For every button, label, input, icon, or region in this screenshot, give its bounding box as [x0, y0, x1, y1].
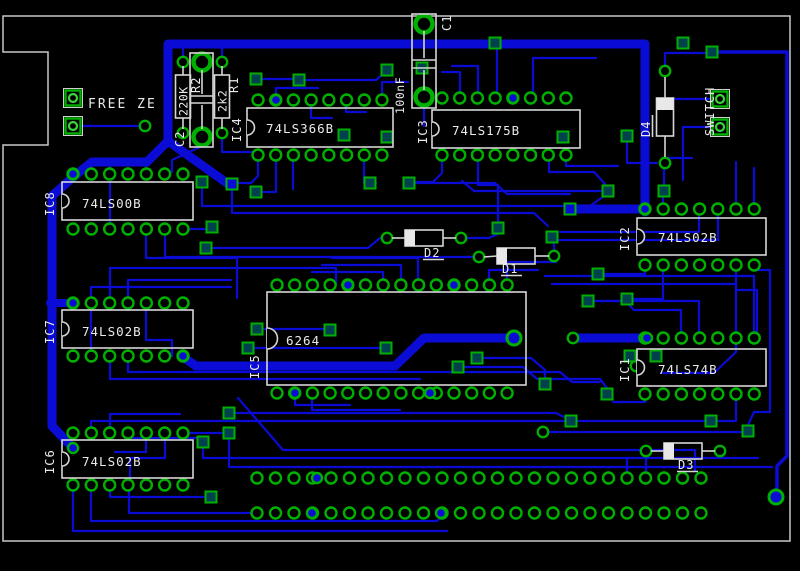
- through-hole-pad: [378, 280, 389, 291]
- through-hole-pad: [141, 169, 152, 180]
- through-hole-pad: [640, 389, 651, 400]
- via-square: [252, 324, 263, 335]
- via-square: [603, 186, 614, 197]
- through-hole-pad: [640, 204, 650, 214]
- through-hole-pad: [712, 204, 723, 215]
- through-hole-pad: [359, 95, 370, 106]
- through-hole-pad: [252, 473, 263, 484]
- through-hole-pad: [194, 129, 211, 146]
- via-square: [224, 428, 235, 439]
- through-hole-pad: [343, 280, 353, 290]
- through-hole-pad: [68, 224, 79, 235]
- through-hole-pad: [376, 95, 387, 106]
- through-hole-pad: [344, 473, 355, 484]
- through-hole-pad: [676, 204, 687, 215]
- d1-ref-label: D1: [502, 262, 518, 276]
- via-square: [339, 130, 350, 141]
- via-square: [251, 74, 262, 85]
- via-square: [678, 38, 689, 49]
- through-hole-pad: [437, 93, 448, 104]
- through-hole-pad: [177, 480, 188, 491]
- through-hole-pad: [360, 388, 371, 399]
- through-hole-pad: [507, 331, 521, 345]
- through-hole-pad: [104, 480, 115, 491]
- through-hole-pad: [437, 150, 448, 161]
- d3-ref-label: D3: [678, 458, 694, 472]
- through-hole-pad: [217, 57, 227, 67]
- d2-ref-label: D2: [424, 246, 440, 260]
- switch-label: SWITCH: [703, 87, 717, 136]
- via-square: [707, 47, 718, 58]
- through-hole-pad: [341, 95, 352, 106]
- ic3-part-label: 74LS175B: [452, 123, 520, 138]
- through-hole-pad: [660, 158, 670, 168]
- through-hole-pad: [466, 280, 477, 291]
- through-hole-pad: [466, 388, 477, 399]
- through-hole-pad: [270, 150, 281, 161]
- through-hole-pad: [178, 57, 188, 67]
- through-hole-pad: [376, 150, 387, 161]
- through-hole-pad: [194, 54, 211, 71]
- through-hole-pad: [658, 389, 669, 400]
- via-square: [566, 416, 577, 427]
- freeze-label: FREE ZE: [88, 97, 157, 112]
- through-hole-pad: [363, 508, 374, 519]
- through-hole-pad: [159, 298, 170, 309]
- switch-pad: [716, 123, 724, 131]
- through-hole-pad: [306, 150, 317, 161]
- pcb-board-view: 74LS00B IC8 74LS02B IC7 74LS02B IC6 74LS…: [0, 0, 800, 571]
- through-hole-pad: [492, 473, 503, 484]
- via-square: [490, 38, 501, 49]
- through-hole-pad: [159, 224, 170, 235]
- through-hole-pad: [490, 93, 501, 104]
- ic2-part-label: 74LS02B: [658, 230, 718, 245]
- through-hole-pad: [474, 252, 484, 262]
- through-hole-pad: [694, 333, 705, 344]
- through-hole-pad: [86, 169, 97, 180]
- through-hole-pad: [68, 428, 79, 439]
- through-hole-pad: [378, 388, 389, 399]
- through-hole-pad: [455, 508, 466, 519]
- via-square: [382, 132, 393, 143]
- through-hole-pad: [141, 351, 152, 362]
- through-hole-pad: [382, 233, 392, 243]
- through-hole-pad: [159, 351, 170, 362]
- ic5-ref-label: IC5: [248, 354, 262, 379]
- via-square: [453, 362, 464, 373]
- through-hole-pad: [68, 443, 78, 453]
- through-hole-pad: [560, 93, 571, 104]
- through-hole-pad: [323, 150, 334, 161]
- through-hole-pad: [502, 388, 513, 399]
- through-hole-pad: [603, 508, 614, 519]
- through-hole-pad: [640, 473, 651, 484]
- c2-ref-label: C2: [173, 131, 187, 147]
- via-square: [583, 296, 594, 307]
- through-hole-pad: [474, 473, 485, 484]
- through-hole-pad: [288, 150, 299, 161]
- through-hole-pad: [490, 150, 501, 161]
- through-hole-pad: [363, 473, 374, 484]
- through-hole-pad: [511, 473, 522, 484]
- via-square: [206, 492, 217, 503]
- through-hole-pad: [177, 224, 188, 235]
- through-hole-pad: [289, 473, 300, 484]
- through-hole-pad: [344, 508, 355, 519]
- through-hole-pad: [342, 388, 353, 399]
- through-hole-pad: [418, 508, 429, 519]
- through-hole-pad: [141, 480, 152, 491]
- through-hole-pad: [104, 351, 115, 362]
- through-hole-pad: [217, 128, 227, 138]
- through-hole-pad: [289, 508, 300, 519]
- via-square: [622, 294, 633, 305]
- d4-ref-label: D4: [639, 121, 653, 137]
- through-hole-pad: [712, 260, 723, 271]
- through-hole-pad: [640, 508, 651, 519]
- through-hole-pad: [307, 388, 318, 399]
- through-hole-pad: [472, 93, 483, 104]
- through-hole-pad: [252, 508, 263, 519]
- through-hole-pad: [676, 389, 687, 400]
- through-hole-pad: [141, 298, 152, 309]
- through-hole-pad: [749, 333, 760, 344]
- through-hole-pad: [86, 480, 97, 491]
- through-hole-pad: [712, 389, 723, 400]
- through-hole-pad: [622, 508, 633, 519]
- through-hole-pad: [658, 204, 669, 215]
- through-hole-pad: [68, 169, 78, 179]
- through-hole-pad: [253, 150, 264, 161]
- through-hole-pad: [508, 93, 518, 103]
- through-hole-pad: [549, 251, 559, 261]
- through-hole-pad: [502, 280, 513, 291]
- through-hole-pad: [307, 280, 318, 291]
- ic4-part-label: 74LS366B: [266, 121, 334, 136]
- through-hole-pad: [715, 446, 725, 456]
- through-hole-pad: [548, 473, 559, 484]
- through-hole-pad: [272, 388, 283, 399]
- through-hole-pad: [566, 508, 577, 519]
- through-hole-pad: [731, 204, 742, 215]
- through-hole-pad: [676, 333, 687, 344]
- through-hole-pad: [659, 473, 670, 484]
- via-square: [593, 269, 604, 280]
- c1-value-label: 100nF: [393, 77, 407, 114]
- through-hole-pad: [731, 389, 742, 400]
- through-hole-pad: [454, 93, 465, 104]
- ic7-ref-label: IC7: [43, 319, 57, 344]
- through-hole-pad: [658, 333, 669, 344]
- through-hole-pad: [525, 150, 536, 161]
- through-hole-pad: [86, 224, 97, 235]
- through-hole-pad: [749, 204, 760, 215]
- through-hole-pad: [642, 333, 652, 343]
- through-hole-pad: [529, 473, 540, 484]
- via-square: [558, 132, 569, 143]
- pcb-canvas: 74LS00B IC8 74LS02B IC7 74LS02B IC6 74LS…: [0, 0, 800, 571]
- through-hole-pad: [431, 280, 442, 291]
- through-hole-pad: [492, 508, 503, 519]
- through-hole-pad: [141, 428, 152, 439]
- through-hole-pad: [640, 260, 651, 271]
- through-hole-pad: [529, 508, 540, 519]
- through-hole-pad: [449, 388, 460, 399]
- through-hole-pad: [659, 508, 670, 519]
- through-hole-pad: [769, 490, 783, 504]
- through-hole-pad: [660, 66, 670, 76]
- through-hole-pad: [104, 169, 115, 180]
- through-hole-pad: [677, 473, 688, 484]
- through-hole-pad: [104, 224, 115, 235]
- through-hole-pad: [325, 388, 336, 399]
- through-hole-pad: [511, 508, 522, 519]
- through-hole-pad: [395, 388, 406, 399]
- through-hole-pad: [658, 260, 669, 271]
- via-square: [382, 65, 393, 76]
- via-square: [251, 187, 262, 198]
- through-hole-pad: [622, 473, 633, 484]
- through-hole-pad: [177, 298, 188, 309]
- through-hole-pad: [677, 508, 688, 519]
- via-square: [743, 426, 754, 437]
- through-hole-pad: [566, 473, 577, 484]
- through-hole-pad: [159, 169, 170, 180]
- through-hole-pad: [454, 150, 465, 161]
- through-hole-pad: [694, 260, 705, 271]
- via-square: [201, 243, 212, 254]
- ic6-part-label: 74LS02B: [82, 454, 142, 469]
- through-hole-pad: [177, 428, 188, 439]
- via-square: [365, 178, 376, 189]
- through-hole-pad: [86, 298, 97, 309]
- through-hole-pad: [425, 388, 435, 398]
- ic6-ref-label: IC6: [43, 449, 57, 474]
- through-hole-pad: [289, 280, 300, 291]
- freeze-pad: [69, 122, 77, 130]
- ic8-ref-label: IC8: [43, 191, 57, 216]
- through-hole-pad: [449, 280, 459, 290]
- c1-ref-label: C1: [440, 15, 454, 31]
- via-square: [706, 416, 717, 427]
- r1-ref-label: R1: [227, 77, 241, 93]
- via-square: [227, 179, 238, 190]
- through-hole-pad: [159, 428, 170, 439]
- via-square: [472, 353, 483, 364]
- via-square: [602, 389, 613, 400]
- via-square: [651, 351, 662, 362]
- through-hole-pad: [418, 473, 429, 484]
- through-hole-pad: [122, 224, 133, 235]
- through-hole-pad: [694, 204, 705, 215]
- through-hole-pad: [416, 16, 433, 33]
- through-hole-pad: [307, 508, 317, 518]
- through-hole-pad: [288, 95, 299, 106]
- through-hole-pad: [696, 473, 707, 484]
- through-hole-pad: [381, 473, 392, 484]
- through-hole-pad: [603, 473, 614, 484]
- via-square: [547, 232, 558, 243]
- through-hole-pad: [731, 333, 742, 344]
- ic5-part-label: 6264: [286, 333, 320, 348]
- via-square: [540, 379, 551, 390]
- ic8-part-label: 74LS00B: [82, 196, 142, 211]
- through-hole-pad: [177, 169, 188, 180]
- through-hole-pad: [159, 480, 170, 491]
- through-hole-pad: [140, 121, 150, 131]
- through-hole-pad: [538, 427, 548, 437]
- ic4-ref-label: IC4: [230, 117, 244, 142]
- through-hole-pad: [381, 508, 392, 519]
- through-hole-pad: [122, 351, 133, 362]
- through-hole-pad: [360, 280, 371, 291]
- through-hole-pad: [68, 480, 79, 491]
- through-hole-pad: [326, 473, 337, 484]
- through-hole-pad: [585, 473, 596, 484]
- via-square: [659, 186, 670, 197]
- through-hole-pad: [104, 298, 115, 309]
- through-hole-pad: [749, 389, 760, 400]
- through-hole-pad: [696, 508, 707, 519]
- through-hole-pad: [474, 508, 485, 519]
- via-square: [622, 131, 633, 142]
- through-hole-pad: [306, 95, 317, 106]
- through-hole-pad: [104, 428, 115, 439]
- through-hole-pad: [472, 150, 483, 161]
- through-hole-pad: [68, 351, 79, 362]
- through-hole-pad: [436, 508, 446, 518]
- through-hole-pad: [400, 473, 411, 484]
- through-hole-pad: [253, 95, 264, 106]
- through-hole-pad: [122, 428, 133, 439]
- through-hole-pad: [271, 95, 281, 105]
- through-hole-pad: [543, 150, 554, 161]
- ic3-ref-label: IC3: [416, 119, 430, 144]
- through-hole-pad: [641, 446, 651, 456]
- via-square: [381, 343, 392, 354]
- through-hole-pad: [694, 389, 705, 400]
- through-hole-pad: [122, 298, 133, 309]
- through-hole-pad: [484, 280, 495, 291]
- through-hole-pad: [323, 95, 334, 106]
- ic2-ref-label: IC2: [618, 226, 632, 251]
- through-hole-pad: [122, 169, 133, 180]
- ic1-ref-label: IC1: [618, 357, 632, 382]
- through-hole-pad: [178, 351, 188, 361]
- through-hole-pad: [731, 260, 742, 271]
- via-square: [493, 223, 504, 234]
- through-hole-pad: [413, 280, 424, 291]
- through-hole-pad: [325, 280, 336, 291]
- via-square: [224, 408, 235, 419]
- through-hole-pad: [416, 89, 433, 106]
- through-hole-pad: [272, 280, 283, 291]
- via-square: [207, 222, 218, 233]
- through-hole-pad: [86, 351, 97, 362]
- through-hole-pad: [507, 150, 518, 161]
- through-hole-pad: [585, 508, 596, 519]
- through-hole-pad: [455, 473, 466, 484]
- through-hole-pad: [413, 388, 424, 399]
- through-hole-pad: [122, 480, 133, 491]
- through-hole-pad: [270, 508, 281, 519]
- through-hole-pad: [290, 388, 300, 398]
- through-hole-pad: [141, 224, 152, 235]
- through-hole-pad: [68, 298, 78, 308]
- ic1-part-label: 74LS74B: [658, 362, 718, 377]
- through-hole-pad: [86, 428, 97, 439]
- via-square: [197, 177, 208, 188]
- through-hole-pad: [312, 473, 322, 483]
- via-square: [243, 343, 254, 354]
- through-hole-pad: [560, 150, 571, 161]
- ic7-part-label: 74LS02B: [82, 324, 142, 339]
- through-hole-pad: [437, 473, 448, 484]
- through-hole-pad: [525, 93, 536, 104]
- via-square: [404, 178, 415, 189]
- via-square: [565, 204, 576, 215]
- through-hole-pad: [749, 260, 760, 271]
- switch-pad: [716, 95, 724, 103]
- through-hole-pad: [326, 508, 337, 519]
- through-hole-pad: [548, 508, 559, 519]
- through-hole-pad: [543, 93, 554, 104]
- through-hole-pad: [568, 333, 578, 343]
- via-square: [198, 437, 209, 448]
- through-hole-pad: [341, 150, 352, 161]
- freeze-pad: [69, 94, 77, 102]
- through-hole-pad: [400, 508, 411, 519]
- through-hole-pad: [359, 150, 370, 161]
- through-hole-pad: [484, 388, 495, 399]
- through-hole-pad: [456, 233, 466, 243]
- through-hole-pad: [395, 280, 406, 291]
- through-hole-pad: [676, 260, 687, 271]
- through-hole-pad: [270, 473, 281, 484]
- via-square: [294, 75, 305, 86]
- r2-ref-label: R2: [189, 77, 203, 93]
- via-square: [325, 325, 336, 336]
- through-hole-pad: [712, 333, 723, 344]
